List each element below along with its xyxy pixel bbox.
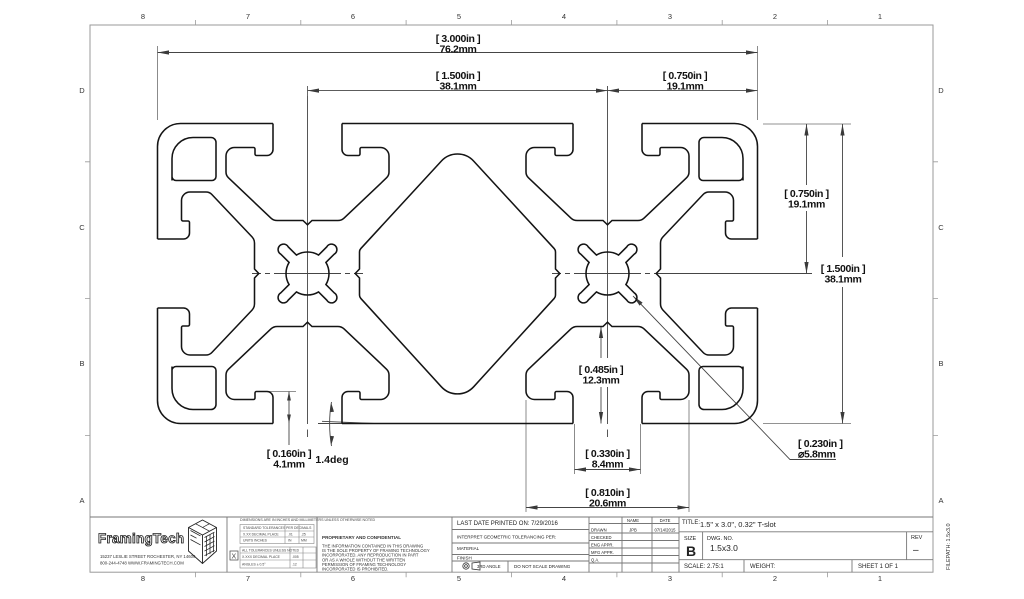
svg-text:SIZE: SIZE: [684, 536, 697, 542]
svg-text:STANDARD TOLERANCES PER DECIMA: STANDARD TOLERANCES PER DECIMALS: [243, 526, 312, 530]
svg-text:1.5x3.0: 1.5x3.0: [710, 543, 738, 553]
svg-text:FramingTech: FramingTech: [98, 531, 184, 546]
svg-text:–: –: [913, 545, 919, 556]
svg-text:WEIGHT:: WEIGHT:: [750, 564, 775, 570]
svg-text:8: 8: [141, 574, 145, 583]
svg-text:4: 4: [562, 574, 566, 583]
svg-text:DWG. NO.: DWG. NO.: [707, 536, 734, 542]
svg-text:REV: REV: [911, 535, 923, 541]
svg-text:FINISH: FINISH: [457, 556, 472, 561]
svg-text:1: 1: [878, 12, 882, 21]
svg-text:FILEPATH: 1.5x3.0: FILEPATH: 1.5x3.0: [946, 523, 952, 570]
svg-text:1: 1: [878, 574, 882, 583]
svg-text:B: B: [79, 359, 84, 368]
svg-text:.12: .12: [292, 563, 297, 567]
svg-text:1.5" x 3.0", 0.32" T-slot: 1.5" x 3.0", 0.32" T-slot: [700, 520, 777, 529]
svg-text:NAME: NAME: [627, 518, 639, 523]
svg-text:2: 2: [773, 12, 777, 21]
svg-text:ALL TOLERANCES UNLESS NOTED: ALL TOLERANCES UNLESS NOTED: [242, 549, 300, 553]
svg-text:SCALE: 2.75:1: SCALE: 2.75:1: [684, 564, 724, 570]
svg-text:INTERPRET GEOMETRIC TOLERANCIN: INTERPRET GEOMETRIC TOLERANCING PER:: [457, 535, 556, 540]
svg-text:800-244-4748 WWW.FRAMINGTECH: 800-244-4748 WWW.FRAMINGTECH.COM: [100, 561, 184, 566]
svg-text:19.1mm: 19.1mm: [788, 199, 825, 211]
svg-text:ANGLES ± 0.5°: ANGLES ± 0.5°: [242, 563, 266, 567]
svg-text:INCORPORATED IS PROHIBITED.: INCORPORATED IS PROHIBITED.: [322, 567, 388, 572]
svg-text:DO NOT SCALE DRAWING: DO NOT SCALE DRAWING: [514, 564, 571, 569]
svg-text:X: X: [232, 554, 237, 561]
svg-text:D: D: [938, 86, 944, 95]
svg-text:12.3mm: 12.3mm: [582, 375, 619, 387]
svg-text:5: 5: [457, 12, 461, 21]
svg-text:8: 8: [141, 12, 145, 21]
svg-text:07/14/2015: 07/14/2015: [655, 528, 677, 533]
svg-text:D: D: [79, 86, 85, 95]
svg-text:3: 3: [668, 12, 672, 21]
svg-text:C: C: [938, 223, 944, 232]
svg-text:38.1mm: 38.1mm: [439, 81, 476, 93]
svg-text:MATERIAL: MATERIAL: [457, 546, 480, 551]
svg-text:4: 4: [562, 12, 566, 21]
svg-text:UNITS INCHES: UNITS INCHES: [243, 539, 268, 543]
svg-text:ENG APPR.: ENG APPR.: [591, 543, 614, 548]
svg-text:4.1mm: 4.1mm: [273, 459, 305, 471]
svg-text:1.4deg: 1.4deg: [315, 454, 348, 466]
svg-text:X.XXX DECIMAL PLACE: X.XXX DECIMAL PLACE: [242, 555, 281, 559]
svg-text:DATE: DATE: [660, 518, 671, 523]
svg-text:8.4mm: 8.4mm: [592, 459, 624, 471]
svg-text:15237 LESLIE STREET ROCHESTE: 15237 LESLIE STREET ROCHESTER, NY 14609: [100, 554, 196, 559]
svg-text:.01: .01: [288, 533, 293, 537]
svg-text:5: 5: [457, 574, 461, 583]
svg-text:6: 6: [351, 574, 355, 583]
svg-text:2: 2: [773, 574, 777, 583]
svg-text:38.1mm: 38.1mm: [824, 274, 861, 286]
svg-text:MM: MM: [301, 539, 307, 543]
svg-text:A: A: [79, 496, 84, 505]
svg-text:7: 7: [246, 12, 250, 21]
svg-text:.25: .25: [301, 533, 306, 537]
svg-text:19.1mm: 19.1mm: [666, 81, 703, 93]
svg-text:⌀5.8mm: ⌀5.8mm: [798, 449, 836, 461]
svg-text:IN: IN: [288, 539, 292, 543]
svg-text:C: C: [79, 223, 85, 232]
svg-text:76.2mm: 76.2mm: [439, 44, 476, 56]
svg-text:3: 3: [668, 574, 672, 583]
svg-text:MFG APPR.: MFG APPR.: [591, 550, 614, 555]
svg-text:B: B: [686, 543, 696, 559]
svg-text:Q.A.: Q.A.: [591, 558, 599, 563]
svg-text:.005: .005: [292, 555, 299, 559]
svg-text:3RD ANGLE: 3RD ANGLE: [477, 564, 501, 569]
svg-text:20.6mm: 20.6mm: [589, 498, 626, 510]
svg-text:CHECKED: CHECKED: [591, 535, 611, 540]
svg-text:X.XX DECIMAL PLACE: X.XX DECIMAL PLACE: [243, 533, 279, 537]
svg-text:DRAWN: DRAWN: [591, 528, 607, 533]
svg-text:7: 7: [246, 574, 250, 583]
svg-text:6: 6: [351, 12, 355, 21]
svg-text:B: B: [938, 359, 943, 368]
svg-text:JPB: JPB: [629, 528, 637, 533]
svg-text:SHEET 1 OF 1: SHEET 1 OF 1: [858, 564, 899, 570]
svg-text:PROPRIETARY AND CONFIDENTIAL: PROPRIETARY AND CONFIDENTIAL: [322, 535, 401, 540]
svg-text:TITLE:: TITLE:: [682, 520, 700, 526]
svg-text:LAST DATE PRINTED ON: 7/29/201: LAST DATE PRINTED ON: 7/29/2016: [457, 521, 558, 527]
svg-text:DIMENSIONS ARE IN INCHES AND M: DIMENSIONS ARE IN INCHES AND MILLIMETERS…: [240, 518, 376, 522]
svg-text:A: A: [938, 496, 943, 505]
